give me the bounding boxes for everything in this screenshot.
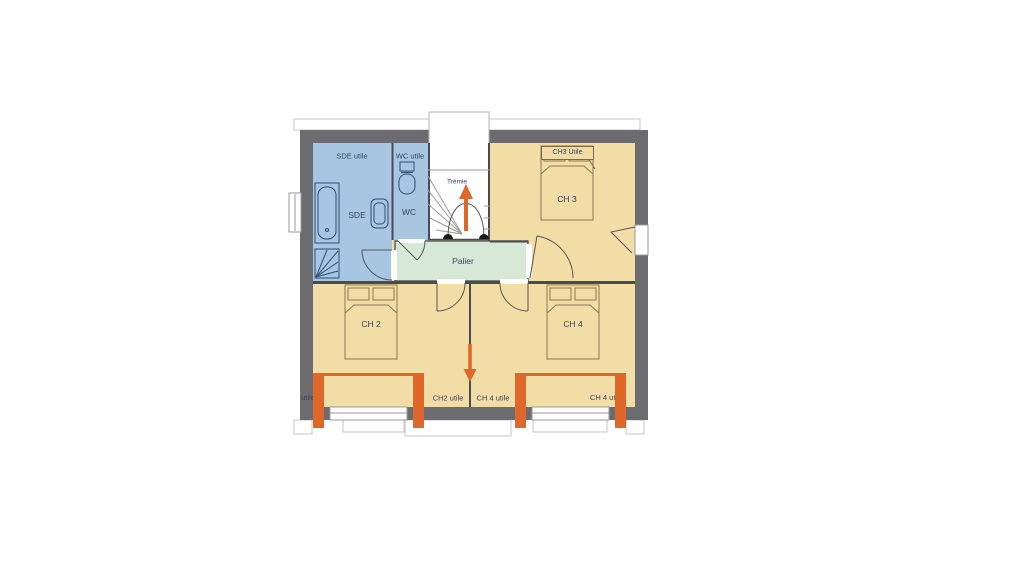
label-sde: SDE bbox=[348, 210, 365, 220]
dormer-ch2-left-post bbox=[313, 373, 324, 428]
label-ch4: CH 4 bbox=[563, 319, 582, 329]
plan-labels: SDE utile WC utile Trémie CH3 Utile SDE … bbox=[0, 0, 1024, 576]
label-wc-utile: WC utile bbox=[396, 152, 424, 161]
label-ch3-utile-callout: CH3 Utile bbox=[541, 146, 594, 160]
label-wc: WC bbox=[402, 207, 416, 217]
dormer-ch2-right-post bbox=[413, 373, 424, 428]
label-sde-utile: SDE utile bbox=[336, 152, 367, 161]
dormer-ch4-right-post bbox=[615, 373, 626, 428]
dormer-ch4-top-bar bbox=[515, 373, 626, 376]
label-ch2-utile-bottom: CH2 utile bbox=[433, 394, 464, 403]
label-ch4-utile-bottom: CH 4 utile bbox=[477, 394, 510, 403]
floor-plan-page: SDE utile WC utile Trémie CH3 Utile SDE … bbox=[0, 0, 1024, 576]
label-ch3: CH 3 bbox=[557, 194, 576, 204]
dormer-ch2-top-bar bbox=[313, 373, 424, 376]
label-ch2: CH 2 bbox=[361, 319, 380, 329]
dormer-ch4-left-post bbox=[515, 373, 526, 428]
label-palier: Palier bbox=[452, 256, 474, 266]
label-tremie: Trémie bbox=[447, 179, 467, 186]
